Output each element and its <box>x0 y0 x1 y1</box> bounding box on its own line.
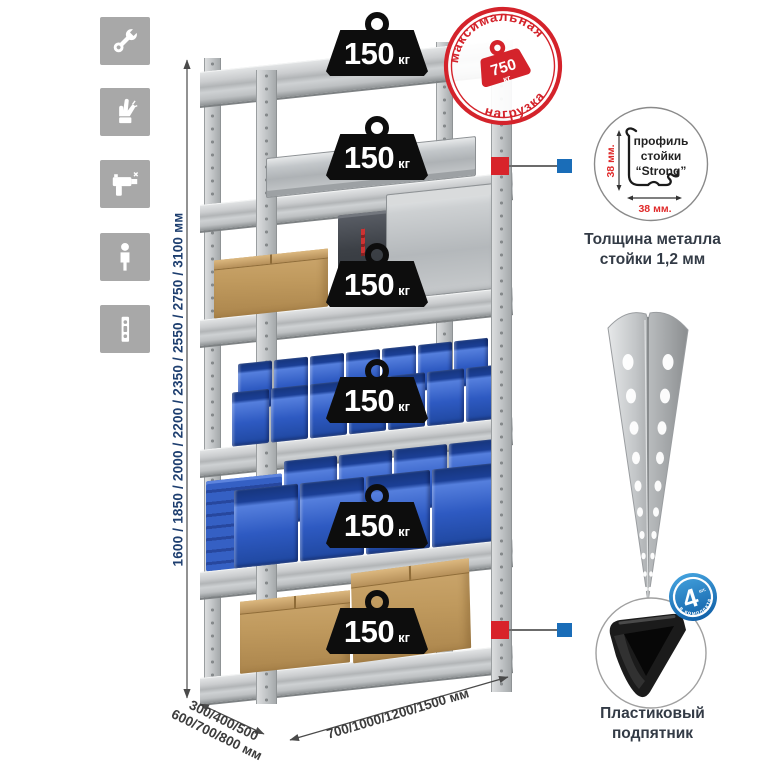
callout-line <box>509 629 557 631</box>
badge-unit: кг <box>398 284 410 297</box>
profile-label-2: стойки <box>641 149 681 163</box>
storage-bin <box>234 484 298 569</box>
badge-value: 150 <box>344 616 394 647</box>
wrench-icon <box>100 17 150 65</box>
weight-badge: 150кг <box>326 116 428 180</box>
badge-value: 150 <box>344 142 394 173</box>
badge-unit: кг <box>398 400 410 413</box>
weight-badge: 150кг <box>326 359 428 423</box>
drill-icon <box>100 160 150 208</box>
weight-badge: 150кг <box>326 590 428 654</box>
height-dimension-label: 1600 / 1850 / 2000 / 2200 / 2350 / 2550 … <box>171 63 186 717</box>
badge-value: 150 <box>344 510 394 541</box>
badge-unit: кг <box>398 631 410 644</box>
weight-badge: 150кг <box>326 12 428 76</box>
callout-marker-red <box>491 621 509 639</box>
profile-caption-line2: стойки 1,2 мм <box>570 250 735 270</box>
person-icon <box>100 233 150 281</box>
gloves-icon <box>100 88 150 136</box>
badge-value: 150 <box>344 38 394 69</box>
profile-label-3: “Strong” <box>636 164 687 178</box>
included-count-badge: 4 шт. в комплекте <box>667 571 719 623</box>
profile-dim-vertical: 38 мм. <box>605 144 617 177</box>
callout-marker-blue <box>557 623 572 637</box>
cardboard-box <box>214 249 328 319</box>
profile-detail-circle: 38 мм. 38 мм. профиль стойки “Strong” <box>592 105 710 223</box>
storage-bin <box>432 463 496 548</box>
perforated-post-icon <box>100 305 150 353</box>
profile-caption: Толщина металла стойки 1,2 мм <box>570 230 735 270</box>
profile-dim-horizontal: 38 мм. <box>638 203 671 215</box>
badge-unit: кг <box>398 525 410 538</box>
profile-caption-line1: Толщина металла <box>570 230 735 250</box>
badge-value: 150 <box>344 269 394 300</box>
callout-marker-blue <box>557 159 572 173</box>
rack-post-front-right <box>491 54 512 692</box>
foot-caption-line1: Пластиковый <box>570 704 735 724</box>
weight-badge: 150кг <box>326 243 428 307</box>
foot-caption: Пластиковый подпятник <box>570 704 735 744</box>
foot-caption-line2: подпятник <box>570 724 735 744</box>
max-load-stamp: максимальная нагрузка 750 кг <box>441 4 565 128</box>
badge-value: 150 <box>344 385 394 416</box>
callout-line <box>509 165 557 167</box>
weight-badge: 150кг <box>326 484 428 548</box>
badge-unit: кг <box>398 53 410 66</box>
profile-label-1: профиль <box>634 134 689 148</box>
callout-marker-red <box>491 157 509 175</box>
badge-unit: кг <box>398 157 410 170</box>
shelving-infographic: 1600 / 1850 / 2000 / 2200 / 2350 / 2550 … <box>0 0 765 765</box>
